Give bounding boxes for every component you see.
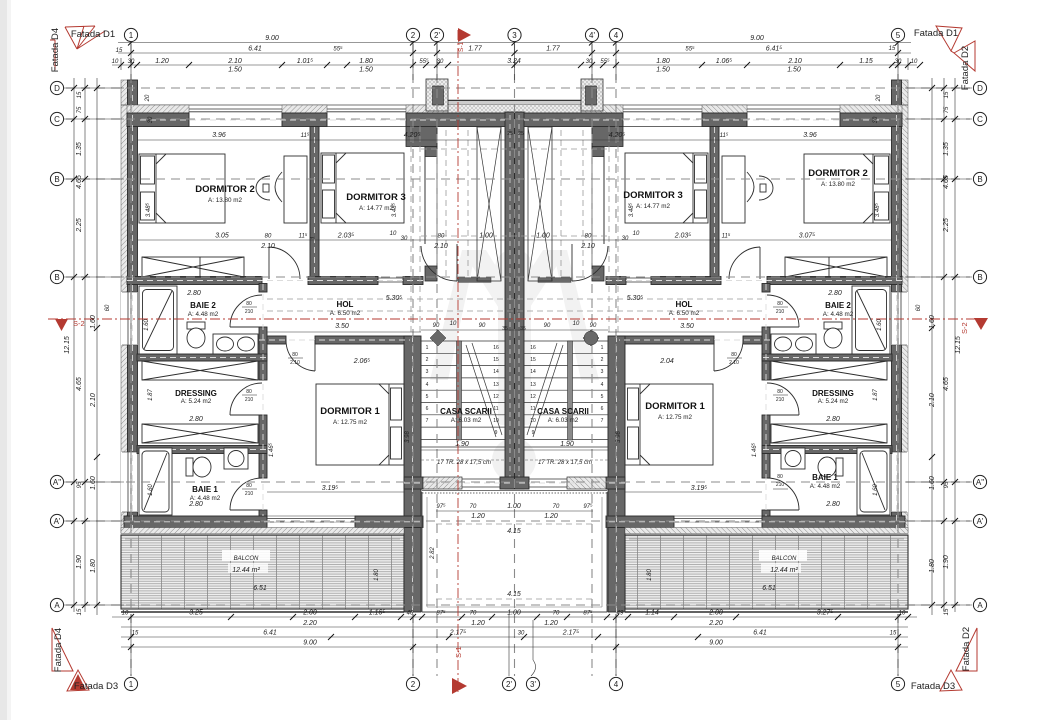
svg-text:Fatada D4: Fatada D4 (50, 28, 61, 72)
svg-text:3.27⁵: 3.27⁵ (817, 610, 834, 617)
svg-text:6: 6 (426, 406, 429, 412)
svg-text:4: 4 (426, 382, 429, 388)
svg-text:1.00: 1.00 (507, 610, 521, 617)
svg-text:15: 15 (530, 357, 536, 363)
svg-text:10: 10 (390, 231, 397, 237)
svg-text:9.00: 9.00 (709, 640, 723, 647)
svg-text:1.20: 1.20 (471, 620, 485, 627)
svg-text:A: A (977, 601, 983, 610)
svg-text:3.48⁵: 3.48⁵ (145, 202, 152, 217)
svg-text:Fatada D4: Fatada D4 (53, 628, 64, 672)
svg-text:2.82: 2.82 (430, 547, 436, 560)
svg-text:4: 4 (601, 382, 604, 388)
svg-text:1.87: 1.87 (148, 389, 154, 401)
svg-text:10: 10 (112, 59, 119, 65)
svg-text:A: 4.48 m2: A: 4.48 m2 (810, 483, 841, 490)
svg-text:1.90: 1.90 (560, 441, 574, 448)
svg-text:6: 6 (601, 406, 604, 412)
svg-text:14: 14 (530, 369, 536, 375)
svg-text:1.87: 1.87 (873, 389, 879, 401)
svg-text:BAIE 2: BAIE 2 (190, 301, 216, 310)
svg-text:11: 11 (530, 406, 535, 412)
svg-text:35: 35 (502, 326, 508, 332)
svg-text:2: 2 (601, 357, 604, 363)
svg-text:5: 5 (896, 680, 901, 689)
svg-text:95: 95 (77, 481, 83, 488)
svg-text:90: 90 (544, 323, 551, 329)
svg-text:2.00: 2.00 (302, 610, 317, 617)
svg-text:15: 15 (77, 91, 83, 98)
svg-text:70: 70 (470, 504, 477, 510)
svg-text:5.30⁵: 5.30⁵ (386, 295, 403, 302)
svg-text:10: 10 (899, 611, 906, 617)
svg-text:2.03⁵: 2.03⁵ (337, 233, 355, 240)
svg-text:1.00: 1.00 (536, 233, 550, 240)
svg-text:DRESSING: DRESSING (175, 389, 217, 398)
svg-text:97⁵: 97⁵ (436, 503, 446, 510)
svg-text:1.77: 1.77 (468, 46, 483, 53)
svg-text:C: C (977, 115, 983, 124)
svg-text:1.60: 1.60 (90, 315, 97, 329)
svg-text:A: 5.24 m2: A: 5.24 m2 (181, 398, 212, 405)
svg-text:1.80: 1.80 (374, 569, 380, 581)
svg-text:3.19⁵: 3.19⁵ (322, 485, 339, 492)
svg-text:40: 40 (407, 611, 414, 617)
svg-text:3.98: 3.98 (616, 431, 622, 443)
svg-text:70: 70 (470, 611, 477, 617)
svg-text:5: 5 (896, 31, 901, 40)
svg-text:1: 1 (129, 680, 134, 689)
svg-text:S-2: S-2 (73, 319, 85, 328)
svg-text:210: 210 (245, 397, 254, 403)
svg-text:1: 1 (426, 345, 429, 351)
svg-text:BAIE 1: BAIE 1 (812, 473, 838, 482)
svg-text:A: 4.48 m2: A: 4.48 m2 (188, 311, 219, 318)
svg-text:A: 4.48 m2: A: 4.48 m2 (823, 311, 854, 318)
svg-text:1.06⁵: 1.06⁵ (716, 58, 733, 65)
svg-text:4.65: 4.65 (943, 377, 950, 391)
svg-text:12.15: 12.15 (955, 336, 962, 354)
svg-text:12.44 m²: 12.44 m² (770, 567, 798, 574)
svg-text:2.25: 2.25 (943, 218, 950, 233)
svg-text:70: 70 (553, 504, 560, 510)
svg-text:55⁵: 55⁵ (333, 46, 343, 53)
svg-text:4: 4 (614, 680, 619, 689)
svg-text:11: 11 (493, 406, 498, 412)
svg-text:Fatada D3: Fatada D3 (911, 681, 955, 692)
svg-text:10: 10 (530, 418, 536, 424)
svg-text:2.10: 2.10 (729, 360, 739, 366)
svg-text:13: 13 (530, 382, 536, 388)
svg-text:2.06⁵: 2.06⁵ (353, 358, 371, 365)
svg-text:1.15: 1.15 (859, 58, 873, 65)
svg-text:30: 30 (401, 236, 408, 242)
svg-text:6.41: 6.41 (263, 630, 277, 637)
svg-text:10: 10 (573, 321, 580, 327)
svg-text:1.80: 1.80 (359, 58, 373, 65)
svg-text:2.20: 2.20 (302, 620, 317, 627)
svg-text:30: 30 (518, 631, 525, 637)
svg-text:1: 1 (601, 345, 604, 351)
svg-text:95: 95 (944, 481, 950, 488)
svg-text:75: 75 (77, 106, 83, 113)
svg-text:3: 3 (512, 31, 517, 40)
svg-text:80: 80 (265, 234, 272, 240)
svg-text:3.96: 3.96 (803, 132, 817, 139)
svg-text:6.41: 6.41 (753, 630, 767, 637)
svg-text:3.98: 3.98 (405, 431, 411, 443)
svg-text:A": A" (53, 478, 61, 487)
svg-text:1.50: 1.50 (228, 67, 242, 74)
svg-text:17 TR. 28 x 17,5 cm: 17 TR. 28 x 17,5 cm (437, 460, 491, 466)
svg-text:1: 1 (129, 31, 134, 40)
svg-text:1.80: 1.80 (90, 559, 97, 573)
svg-text:BALCON: BALCON (772, 556, 797, 562)
svg-text:25: 25 (518, 131, 524, 137)
svg-text:1.20: 1.20 (155, 58, 169, 65)
svg-text:2: 2 (411, 680, 416, 689)
svg-text:2.10: 2.10 (929, 393, 936, 408)
svg-text:80: 80 (246, 483, 252, 489)
svg-text:35: 35 (520, 326, 526, 332)
svg-text:20: 20 (145, 94, 151, 102)
svg-text:1.50: 1.50 (656, 67, 670, 74)
svg-text:80: 80 (246, 389, 252, 395)
svg-text:A": A" (976, 478, 984, 487)
svg-text:2.10: 2.10 (90, 393, 97, 408)
svg-text:210: 210 (776, 309, 785, 315)
svg-text:A: 14.77 m2: A: 14.77 m2 (636, 203, 670, 210)
svg-text:1.80: 1.80 (656, 58, 670, 65)
svg-text:210: 210 (245, 309, 254, 315)
svg-text:DORMITOR 2: DORMITOR 2 (195, 184, 254, 195)
svg-text:Fatada D1: Fatada D1 (71, 29, 115, 40)
svg-text:HOL: HOL (676, 300, 693, 309)
svg-text:1.35: 1.35 (76, 142, 83, 156)
svg-text:87⁵: 87⁵ (436, 610, 446, 617)
svg-text:3.48⁵: 3.48⁵ (628, 202, 635, 217)
svg-text:2.17⁵: 2.17⁵ (562, 630, 580, 637)
svg-text:3.50: 3.50 (680, 323, 694, 330)
svg-text:90: 90 (479, 323, 486, 329)
svg-text:7: 7 (601, 418, 604, 424)
svg-text:9.00: 9.00 (303, 640, 317, 647)
svg-text:49: 49 (617, 611, 624, 617)
svg-text:2.10: 2.10 (433, 243, 448, 250)
svg-text:1.60: 1.60 (873, 484, 879, 496)
svg-text:A: 6.03 m2: A: 6.03 m2 (548, 417, 579, 424)
svg-text:1.20: 1.20 (544, 620, 558, 627)
svg-text:3.05: 3.05 (215, 233, 229, 240)
svg-text:55⁵: 55⁵ (685, 46, 695, 53)
svg-text:15: 15 (116, 48, 123, 54)
svg-text:9: 9 (495, 430, 498, 436)
svg-text:15: 15 (77, 608, 83, 615)
svg-text:4: 4 (614, 31, 619, 40)
svg-text:4.20⁵: 4.20⁵ (609, 132, 626, 139)
svg-text:80: 80 (292, 352, 298, 358)
svg-text:2.25: 2.25 (76, 218, 83, 233)
svg-text:16: 16 (493, 345, 499, 351)
svg-text:2.00: 2.00 (708, 610, 723, 617)
svg-text:4.65: 4.65 (76, 175, 83, 189)
svg-text:55⁵: 55⁵ (419, 58, 429, 65)
svg-text:A: 6.03 m2: A: 6.03 m2 (451, 417, 482, 424)
svg-text:4.15: 4.15 (507, 591, 521, 598)
svg-text:11⁵: 11⁵ (301, 132, 310, 139)
svg-text:3.96: 3.96 (212, 132, 226, 139)
svg-text:A: 12.75 m2: A: 12.75 m2 (333, 419, 367, 426)
svg-text:2.10: 2.10 (787, 58, 802, 65)
svg-text:D: D (977, 84, 983, 93)
svg-text:A': A' (54, 517, 61, 526)
svg-text:12: 12 (530, 394, 536, 400)
svg-text:A: 6.50 m2: A: 6.50 m2 (669, 310, 700, 317)
svg-text:2.10: 2.10 (260, 243, 275, 250)
svg-text:210: 210 (776, 397, 785, 403)
svg-text:6.51: 6.51 (253, 585, 267, 592)
svg-text:1.20: 1.20 (544, 513, 558, 520)
svg-text:12.44 m²: 12.44 m² (232, 567, 260, 574)
svg-text:80: 80 (777, 389, 783, 395)
svg-text:A: 14.77 m2: A: 14.77 m2 (359, 205, 393, 212)
svg-text:BAIE 2: BAIE 2 (825, 301, 851, 310)
svg-text:1.46⁵: 1.46⁵ (268, 442, 275, 457)
svg-text:6.51: 6.51 (762, 585, 776, 592)
svg-text:4.65: 4.65 (943, 175, 950, 189)
svg-text:3.19⁵: 3.19⁵ (691, 485, 708, 492)
svg-text:Fatada D3: Fatada D3 (74, 681, 118, 692)
svg-text:A: 12.75 m2: A: 12.75 m2 (658, 414, 692, 421)
svg-text:210: 210 (776, 482, 785, 488)
svg-text:6.41⁵: 6.41⁵ (766, 46, 783, 53)
svg-text:2': 2' (434, 31, 440, 40)
svg-text:DORMITOR 3: DORMITOR 3 (346, 192, 405, 203)
svg-text:1.60: 1.60 (929, 476, 936, 490)
svg-text:4.65: 4.65 (76, 377, 83, 391)
svg-text:BALCON: BALCON (234, 556, 259, 562)
svg-text:D: D (54, 84, 60, 93)
svg-text:16: 16 (530, 345, 536, 351)
svg-text:A: 6.50 m2: A: 6.50 m2 (330, 310, 361, 317)
svg-text:1.46⁵: 1.46⁵ (751, 442, 758, 457)
svg-text:1.60: 1.60 (148, 484, 154, 496)
svg-text:2.03⁵: 2.03⁵ (674, 233, 692, 240)
svg-text:5: 5 (426, 394, 429, 400)
svg-text:2: 2 (426, 357, 429, 363)
svg-text:2': 2' (506, 680, 512, 689)
svg-text:90: 90 (590, 323, 597, 329)
svg-text:20: 20 (876, 94, 882, 102)
svg-text:S-2: S-2 (960, 322, 969, 334)
svg-text:30: 30 (437, 59, 444, 65)
svg-text:15: 15 (132, 631, 139, 637)
svg-text:3.48⁵: 3.48⁵ (391, 202, 398, 217)
svg-text:1.80: 1.80 (929, 559, 936, 573)
svg-text:1.60: 1.60 (90, 476, 97, 490)
svg-text:CASA SCARII: CASA SCARII (440, 407, 492, 416)
svg-text:12.15: 12.15 (64, 336, 71, 354)
svg-text:10: 10 (450, 321, 457, 327)
svg-text:210: 210 (245, 491, 254, 497)
svg-text:4': 4' (589, 31, 595, 40)
svg-text:80: 80 (777, 301, 783, 307)
svg-text:Fatada D2: Fatada D2 (960, 46, 971, 90)
svg-text:80: 80 (585, 234, 592, 240)
svg-text:B: B (54, 175, 59, 184)
svg-text:1.50: 1.50 (359, 67, 373, 74)
svg-text:1: 1 (311, 236, 317, 239)
svg-text:2.80: 2.80 (186, 290, 201, 297)
svg-text:9.00: 9.00 (750, 35, 764, 42)
svg-text:2.80: 2.80 (825, 501, 840, 508)
svg-text:55⁵: 55⁵ (600, 58, 610, 65)
svg-text:1.50: 1.50 (787, 67, 801, 74)
svg-text:2.17⁵: 2.17⁵ (449, 630, 467, 637)
svg-text:11⁵: 11⁵ (722, 233, 731, 240)
svg-text:A: A (54, 601, 60, 610)
svg-text:30: 30 (895, 59, 902, 65)
svg-text:10: 10 (911, 59, 918, 65)
svg-text:C: C (54, 115, 60, 124)
svg-text:1.14: 1.14 (645, 610, 659, 617)
svg-text:3.48⁵: 3.48⁵ (874, 202, 881, 217)
svg-text:80: 80 (731, 352, 737, 358)
svg-text:CASA SCARII: CASA SCARII (537, 407, 589, 416)
svg-text:75: 75 (944, 106, 950, 113)
svg-text:S-1: S-1 (454, 646, 463, 658)
svg-text:B: B (977, 175, 982, 184)
svg-text:87⁵: 87⁵ (583, 610, 593, 617)
svg-text:90: 90 (433, 323, 440, 329)
svg-text:S-1: S-1 (458, 42, 465, 53)
svg-text:60: 60 (916, 304, 922, 311)
svg-text:2.80: 2.80 (825, 416, 840, 423)
svg-text:4.15: 4.15 (507, 528, 521, 535)
svg-text:17 TR. 28 x 17,5 cm: 17 TR. 28 x 17,5 cm (538, 460, 592, 466)
svg-text:80: 80 (438, 234, 445, 240)
svg-text:1.60: 1.60 (144, 319, 150, 331)
svg-text:30: 30 (873, 116, 879, 123)
svg-text:14: 14 (493, 369, 499, 375)
svg-text:2.10: 2.10 (290, 360, 300, 366)
svg-text:3.25: 3.25 (189, 610, 203, 617)
svg-text:1.00: 1.00 (507, 503, 521, 510)
svg-text:3.24: 3.24 (507, 58, 521, 65)
svg-text:3.07⁵: 3.07⁵ (799, 233, 816, 240)
svg-text:B: B (54, 273, 59, 282)
svg-text:15: 15 (889, 46, 896, 52)
svg-text:DORMITOR 1: DORMITOR 1 (645, 401, 705, 412)
svg-text:BAIE 1: BAIE 1 (192, 485, 218, 494)
svg-text:2.80: 2.80 (827, 290, 842, 297)
svg-text:B: B (977, 273, 982, 282)
svg-text:3.50: 3.50 (335, 323, 349, 330)
svg-text:60: 60 (105, 304, 111, 311)
svg-text:1.90: 1.90 (76, 555, 83, 569)
svg-text:6.41: 6.41 (248, 46, 262, 53)
svg-text:1.77: 1.77 (546, 46, 561, 53)
svg-text:2.80: 2.80 (188, 416, 203, 423)
svg-text:9: 9 (532, 430, 535, 436)
svg-text:3: 3 (426, 369, 429, 375)
svg-text:15: 15 (493, 357, 499, 363)
svg-text:30: 30 (128, 59, 135, 65)
svg-text:30: 30 (622, 236, 629, 242)
svg-text:70: 70 (553, 611, 560, 617)
svg-text:3': 3' (530, 680, 536, 689)
svg-text:10: 10 (633, 231, 640, 237)
svg-text:25: 25 (507, 131, 513, 137)
svg-text:DORMITOR 2: DORMITOR 2 (808, 168, 867, 179)
svg-text:15: 15 (944, 91, 950, 98)
svg-text:HOL: HOL (337, 300, 354, 309)
svg-text:30: 30 (586, 59, 593, 65)
svg-text:13: 13 (493, 382, 499, 388)
svg-text:2.10: 2.10 (227, 58, 242, 65)
svg-text:12: 12 (493, 394, 499, 400)
svg-text:1.00: 1.00 (479, 233, 493, 240)
svg-text:1.01⁵: 1.01⁵ (297, 58, 314, 65)
svg-text:1.90: 1.90 (455, 441, 469, 448)
svg-text:1.35: 1.35 (943, 142, 950, 156)
svg-text:11⁵: 11⁵ (720, 132, 729, 139)
svg-text:5: 5 (601, 394, 604, 400)
svg-text:2.20: 2.20 (708, 620, 723, 627)
svg-text:1.90: 1.90 (943, 555, 950, 569)
svg-text:4.20⁵: 4.20⁵ (404, 132, 421, 139)
svg-text:A: 5.24 m2: A: 5.24 m2 (818, 398, 849, 405)
svg-text:3: 3 (601, 369, 604, 375)
svg-text:80: 80 (777, 474, 783, 480)
svg-text:A: 13.80 m2: A: 13.80 m2 (208, 197, 242, 204)
svg-text:DORMITOR 1: DORMITOR 1 (320, 406, 380, 417)
svg-text:Fatada D1: Fatada D1 (914, 28, 958, 39)
svg-text:10: 10 (122, 611, 129, 617)
svg-text:15: 15 (890, 631, 897, 637)
svg-text:2.10: 2.10 (580, 243, 595, 250)
svg-text:DORMITOR 3: DORMITOR 3 (623, 190, 682, 201)
svg-text:2.80: 2.80 (188, 501, 203, 508)
svg-text:10: 10 (493, 418, 499, 424)
svg-text:1.60: 1.60 (877, 319, 883, 331)
svg-text:9.00: 9.00 (265, 35, 279, 42)
svg-text:1.16⁵: 1.16⁵ (369, 610, 386, 617)
svg-text:7: 7 (426, 418, 429, 424)
svg-text:DRESSING: DRESSING (812, 389, 854, 398)
svg-text:1.20: 1.20 (471, 513, 485, 520)
svg-text:2: 2 (411, 31, 416, 40)
svg-text:A': A' (977, 517, 984, 526)
svg-text:11⁵: 11⁵ (299, 233, 308, 240)
svg-text:Fatada D2: Fatada D2 (961, 627, 972, 671)
svg-text:1.80: 1.80 (647, 569, 653, 581)
svg-text:97⁵: 97⁵ (583, 503, 593, 510)
svg-text:30: 30 (148, 116, 154, 123)
svg-text:5.30⁵: 5.30⁵ (627, 295, 644, 302)
svg-text:A: 13.80 m2: A: 13.80 m2 (821, 181, 855, 188)
svg-text:80: 80 (246, 301, 252, 307)
svg-text:2.04: 2.04 (659, 358, 674, 365)
svg-text:1.60: 1.60 (929, 315, 936, 329)
svg-text:15: 15 (944, 608, 950, 615)
